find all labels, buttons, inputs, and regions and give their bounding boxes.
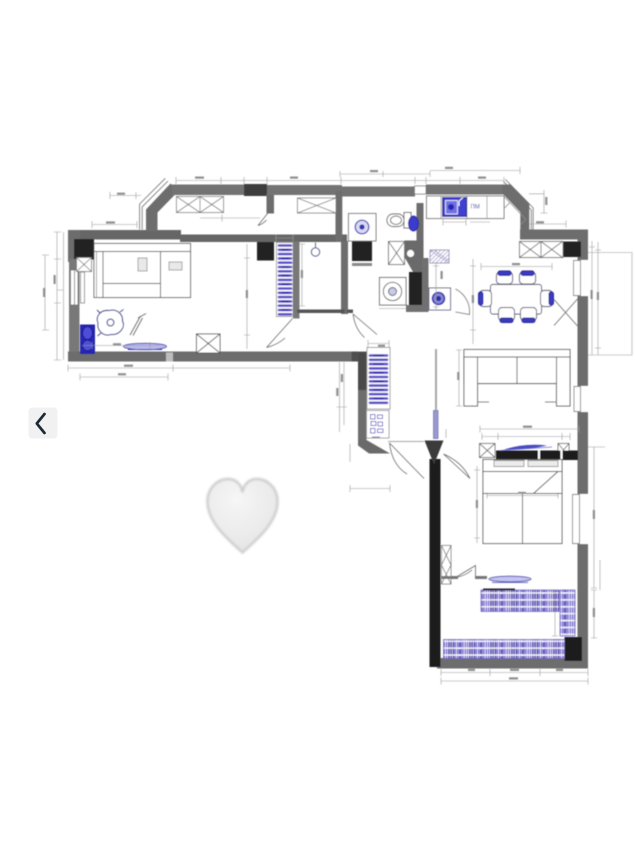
svg-text:ПМ: ПМ <box>471 205 480 211</box>
